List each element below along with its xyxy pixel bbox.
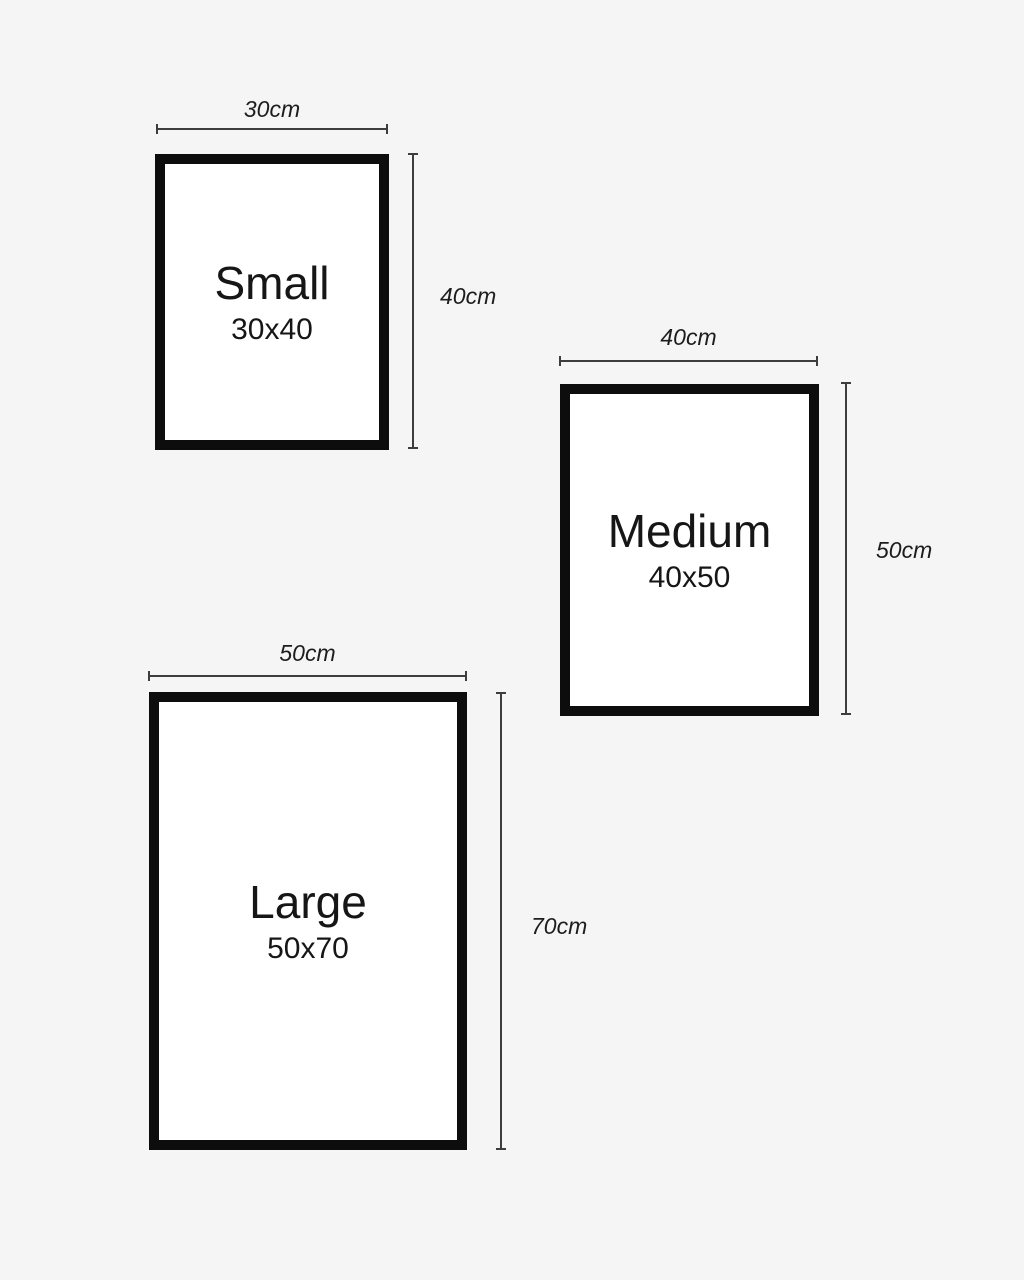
frame-large: Large 50x70 bbox=[149, 692, 467, 1150]
medium-width-label: 40cm bbox=[559, 324, 818, 350]
medium-height-label: 50cm bbox=[876, 537, 932, 563]
frame-small-name: Small bbox=[214, 259, 329, 307]
large-height-label: 70cm bbox=[531, 913, 587, 939]
medium-height-dimension-line bbox=[845, 382, 847, 715]
frame-size-guide-diagram: 30cm Small 30x40 40cm 40cm Medium 40x50 … bbox=[0, 0, 1024, 1280]
frame-small-size: 30x40 bbox=[231, 314, 313, 346]
frame-medium: Medium 40x50 bbox=[560, 384, 819, 716]
frame-small: Small 30x40 bbox=[155, 154, 389, 450]
small-height-label: 40cm bbox=[440, 283, 496, 309]
frame-medium-size: 40x50 bbox=[649, 562, 731, 594]
frame-large-size: 50x70 bbox=[267, 933, 349, 965]
small-height-dimension-line bbox=[412, 153, 414, 449]
large-width-label: 50cm bbox=[148, 640, 467, 666]
small-width-label: 30cm bbox=[156, 96, 388, 122]
frame-large-name: Large bbox=[249, 878, 367, 926]
small-width-dimension-line bbox=[156, 128, 388, 130]
frame-medium-name: Medium bbox=[608, 507, 772, 555]
large-height-dimension-line bbox=[500, 692, 502, 1150]
large-width-dimension-line bbox=[148, 675, 467, 677]
medium-width-dimension-line bbox=[559, 360, 818, 362]
